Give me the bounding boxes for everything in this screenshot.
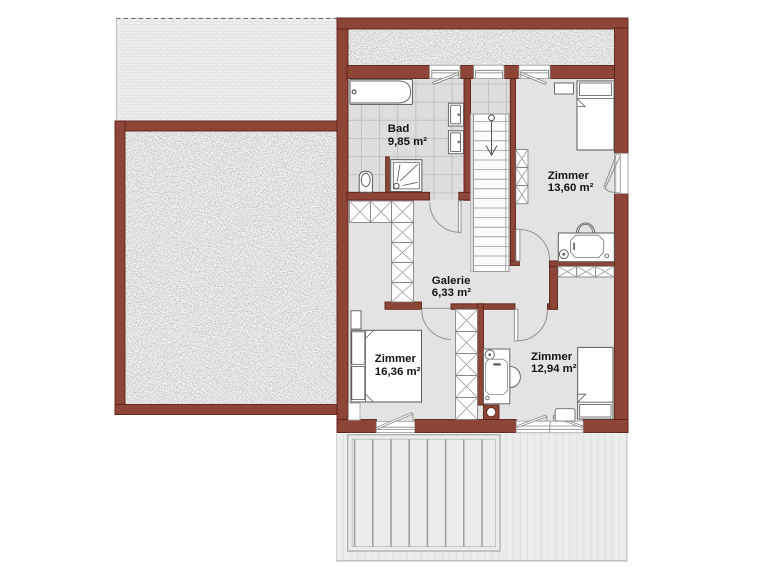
svg-text:Zimmer: Zimmer [375, 353, 417, 365]
svg-text:6,33 m²: 6,33 m² [432, 287, 471, 299]
svg-text:13,60 m²: 13,60 m² [548, 182, 594, 194]
svg-text:12,94 m²: 12,94 m² [531, 363, 577, 375]
svg-text:16,36 m²: 16,36 m² [375, 366, 421, 378]
svg-text:Zimmer: Zimmer [531, 351, 573, 363]
svg-text:Bad: Bad [388, 123, 410, 135]
svg-text:Zimmer: Zimmer [548, 170, 590, 182]
svg-text:9,85 m²: 9,85 m² [388, 136, 427, 148]
svg-text:Galerie: Galerie [432, 275, 471, 287]
